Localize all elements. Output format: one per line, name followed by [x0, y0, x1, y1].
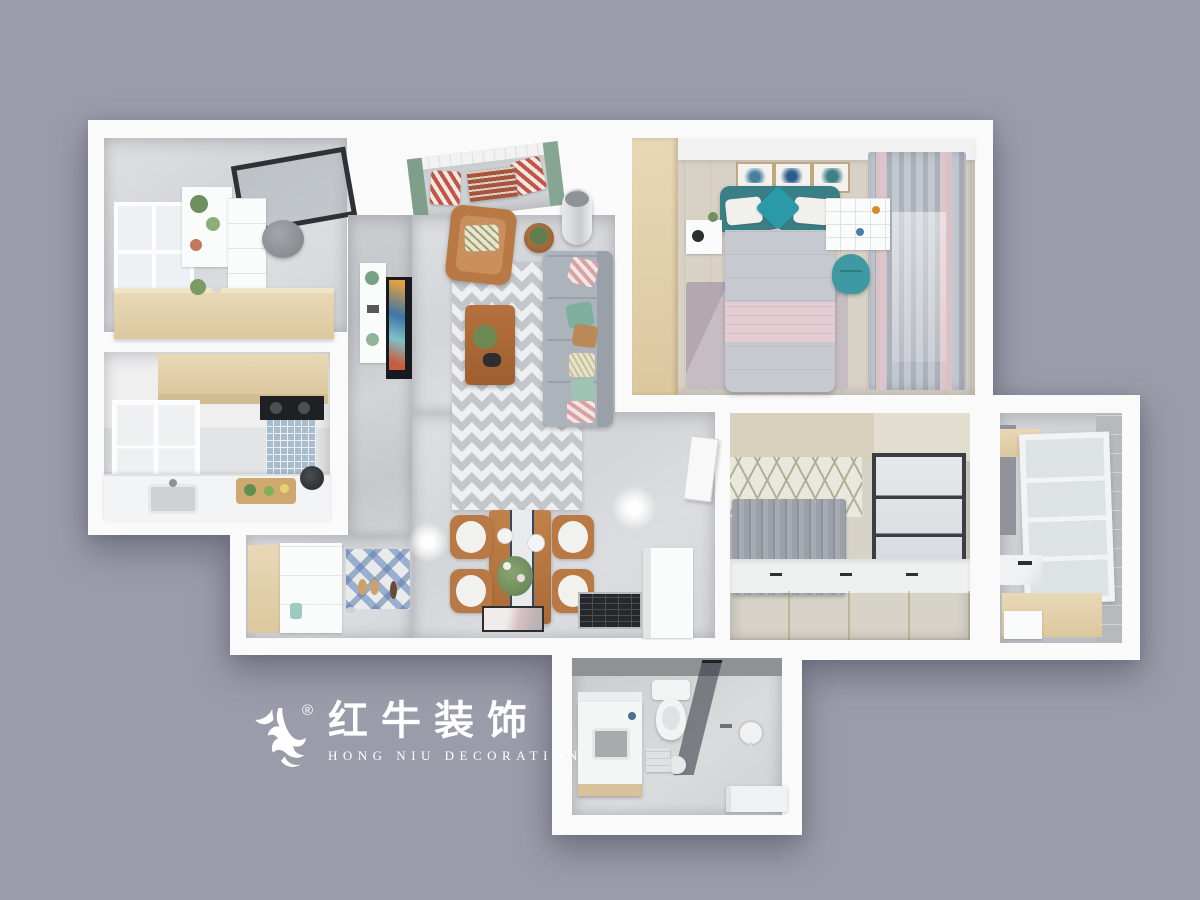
vanity-mirror	[578, 692, 642, 702]
balcony-white-box	[1004, 611, 1042, 639]
curtain-pink-band	[876, 152, 886, 390]
ceiling-light	[612, 486, 656, 530]
registered-mark: ®	[302, 702, 313, 719]
storage-cart	[646, 748, 670, 772]
pink-blanket	[725, 302, 835, 342]
shower-arm	[749, 742, 752, 758]
desk-chair	[832, 254, 870, 294]
brand-logo: ® 红牛装饰 HONG NIU DECORATION	[250, 700, 583, 770]
coffee-table	[465, 305, 515, 385]
marble-counter	[1000, 555, 1042, 585]
sofa-pillow-floral	[569, 353, 595, 377]
plate-icon	[497, 528, 513, 544]
chair-seam	[840, 270, 862, 272]
alarm-clock-icon	[692, 230, 704, 242]
nightstand	[686, 220, 722, 254]
plant-icon	[206, 217, 220, 231]
floor-grate	[578, 592, 642, 629]
open-door	[683, 436, 719, 503]
plant-icon	[190, 195, 208, 213]
door-handle-icon	[346, 607, 356, 614]
sideboard-shadow	[643, 548, 651, 638]
shoe-cabinet-wood-frame	[248, 545, 280, 633]
curtain-sheer	[892, 212, 946, 362]
vegetable-icon	[264, 486, 274, 496]
dining-chair	[450, 515, 492, 559]
tatami-mattress	[730, 559, 970, 593]
sofa-pillow-striped2	[567, 401, 595, 423]
room-foyer	[104, 138, 347, 332]
flower-icon	[517, 574, 525, 582]
tray-icon	[483, 353, 501, 367]
bathroom-dark-wall	[572, 658, 782, 676]
brand-subtitle: HONG NIU DECORATION	[328, 748, 583, 764]
floorplan-render: ® 红牛装饰 HONG NIU DECORATION	[0, 0, 1200, 900]
slipper-icon	[370, 579, 379, 595]
flower-pot-icon	[190, 239, 202, 251]
entry-door-mat	[293, 594, 407, 632]
vanity-cabinet	[578, 702, 642, 796]
ottoman	[262, 220, 304, 258]
tv-screen	[386, 277, 414, 379]
decor-icon	[367, 305, 379, 313]
ac-tower	[562, 189, 592, 245]
plant-icon	[708, 212, 718, 222]
sofa-backrest	[597, 251, 613, 427]
rain-shower-head	[738, 720, 764, 746]
tatami-platform-front	[730, 591, 970, 640]
plant-icon	[190, 279, 206, 295]
faucet-icon	[1018, 561, 1032, 565]
dark-bowl	[300, 466, 324, 490]
chair-cushion	[456, 575, 486, 607]
handle-icon	[840, 573, 852, 576]
handle-icon	[906, 573, 918, 576]
bedroom1-curtains	[868, 152, 966, 390]
lemon-icon	[280, 484, 289, 493]
soap-icon	[628, 712, 636, 720]
chair-cushion	[456, 521, 486, 553]
vegetable-icon	[244, 484, 256, 496]
apartment-floorplan	[0, 0, 1200, 900]
plant-icon	[473, 325, 497, 349]
shower-faucet-icon	[720, 724, 732, 728]
kitchen-sink	[148, 484, 198, 514]
cooktop	[260, 396, 324, 420]
ceiling-light	[408, 522, 448, 562]
leaning-painting	[482, 606, 544, 632]
wardrobe	[632, 138, 678, 395]
desk-item-icon	[872, 206, 880, 214]
room-entry	[246, 535, 412, 638]
plant-icon	[366, 333, 379, 346]
bathroom-sink	[592, 728, 630, 760]
burner-icon	[298, 402, 310, 414]
sideboard	[643, 548, 693, 638]
toilet-bowl	[656, 698, 686, 740]
plate-icon	[527, 534, 545, 552]
room-kitchen	[104, 352, 330, 520]
plant-icon	[365, 271, 379, 285]
plant-icon	[530, 227, 548, 245]
storage-column	[228, 198, 266, 298]
shower-curb	[726, 786, 787, 812]
room-bathroom	[572, 658, 782, 815]
bed-body	[725, 230, 835, 392]
sofa	[543, 251, 613, 427]
tv-wall	[348, 215, 412, 538]
chair-cushion	[558, 521, 588, 553]
vase-icon	[212, 283, 222, 293]
sofa-pillow-tan	[572, 323, 599, 348]
ac-top	[565, 191, 589, 207]
toilet	[652, 680, 690, 700]
kitchen-counter	[104, 474, 330, 522]
burner-icon	[270, 402, 282, 414]
tv-wall-shelf	[360, 263, 386, 363]
cutting-board	[236, 478, 296, 504]
centerpiece-flowers	[497, 556, 533, 596]
faucet-icon	[169, 479, 177, 487]
side-table	[524, 223, 554, 253]
plant-shelf	[182, 187, 232, 267]
toilet-seat	[662, 706, 680, 730]
brand-name: 红牛装饰	[328, 700, 583, 742]
trash-bin	[668, 756, 686, 774]
room-bedroom1	[632, 138, 975, 395]
dining-chair	[552, 515, 594, 559]
throw-pillow	[464, 224, 499, 251]
armchair	[444, 204, 518, 286]
handle-icon	[770, 573, 782, 576]
desk-item-icon	[856, 228, 864, 236]
flower-icon	[503, 562, 511, 570]
entry-console	[114, 288, 334, 339]
room-balcony-right	[1000, 413, 1122, 643]
slipper-icon	[358, 579, 367, 595]
lounge-cushion-left	[430, 170, 462, 206]
room-bedroom2	[730, 413, 970, 640]
desk-shelf	[826, 198, 890, 250]
balcony-bench	[467, 166, 518, 202]
